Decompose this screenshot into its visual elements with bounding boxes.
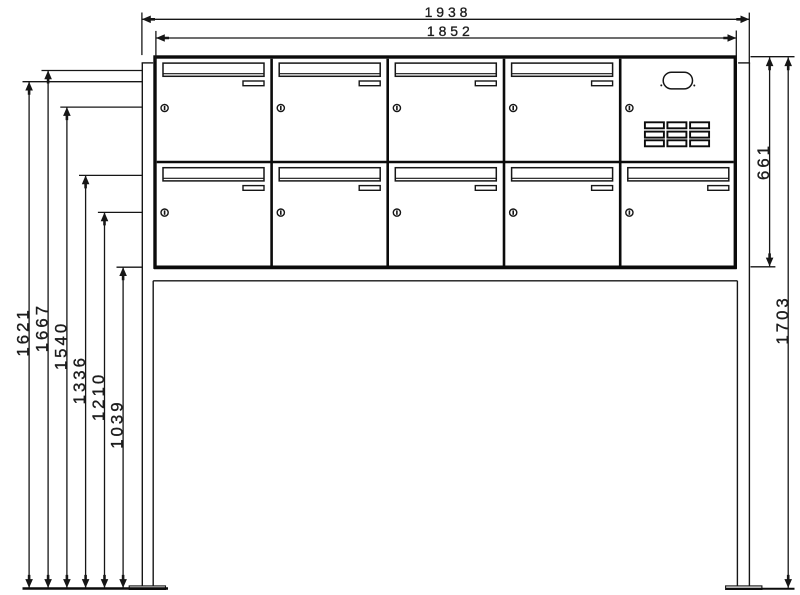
svg-text:1210: 1210 bbox=[89, 372, 108, 421]
svg-text:1039: 1039 bbox=[108, 399, 127, 448]
svg-text:661: 661 bbox=[754, 143, 773, 180]
svg-text:1540: 1540 bbox=[52, 321, 71, 370]
svg-text:1938: 1938 bbox=[425, 4, 472, 20]
svg-text:1336: 1336 bbox=[70, 355, 89, 404]
svg-text:1667: 1667 bbox=[33, 303, 52, 352]
svg-text:1621: 1621 bbox=[14, 307, 33, 356]
svg-text:1703: 1703 bbox=[773, 295, 792, 344]
svg-text:1852: 1852 bbox=[427, 23, 474, 39]
